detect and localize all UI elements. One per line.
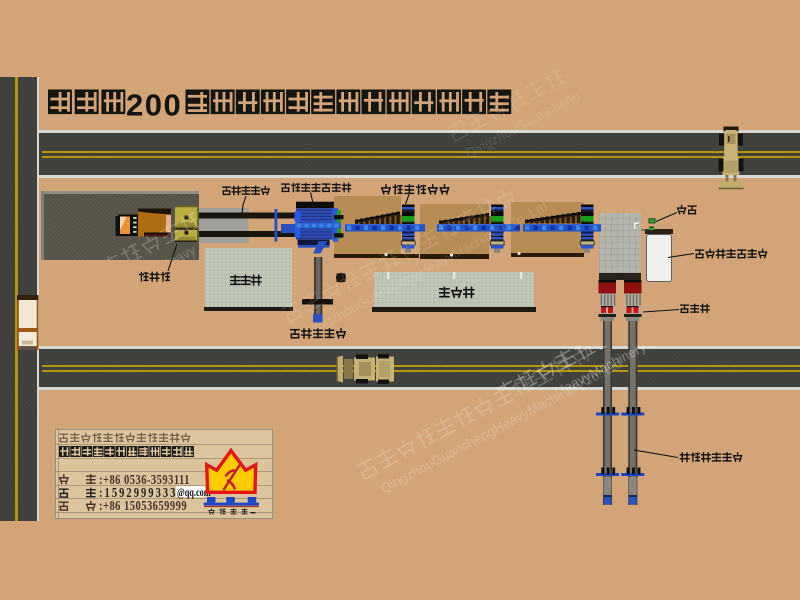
svg-text:200: 200 [126,88,182,123]
svg-text:QingzhouGuanchengHeavy: QingzhouGuanchengHeavy [45,242,199,333]
